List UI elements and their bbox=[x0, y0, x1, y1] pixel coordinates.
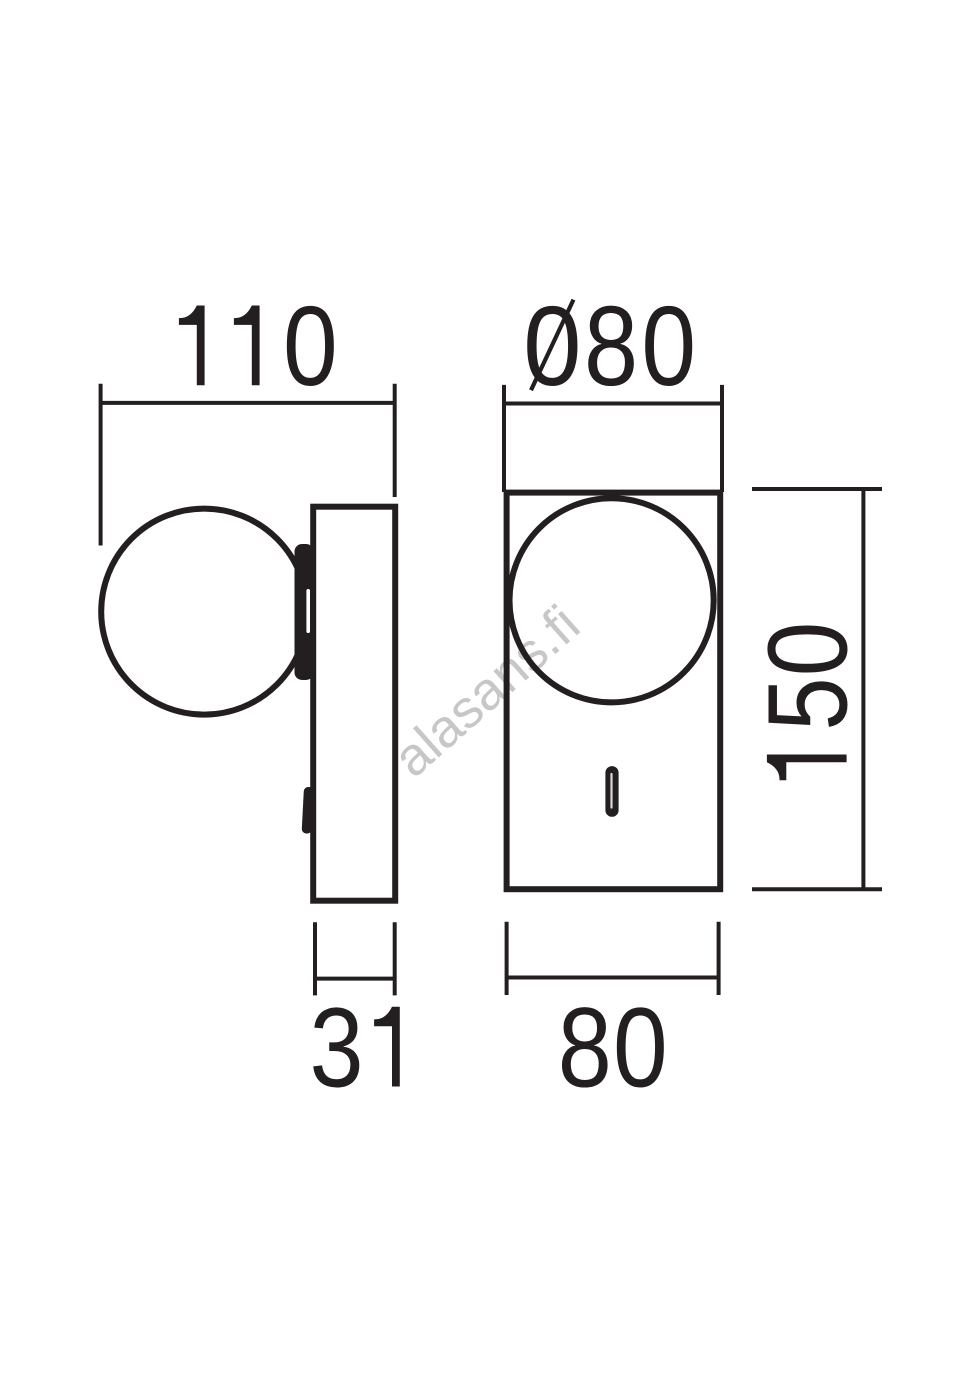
svg-text:3: 3 bbox=[309, 986, 363, 1111]
svg-text:0: 0 bbox=[641, 284, 696, 410]
svg-text:8: 8 bbox=[558, 986, 612, 1111]
svg-text:0: 0 bbox=[283, 284, 338, 410]
svg-text:5: 5 bbox=[745, 677, 871, 730]
svg-text:8: 8 bbox=[584, 284, 638, 409]
svg-text:0: 0 bbox=[745, 622, 871, 677]
svg-text:0: 0 bbox=[613, 985, 668, 1111]
